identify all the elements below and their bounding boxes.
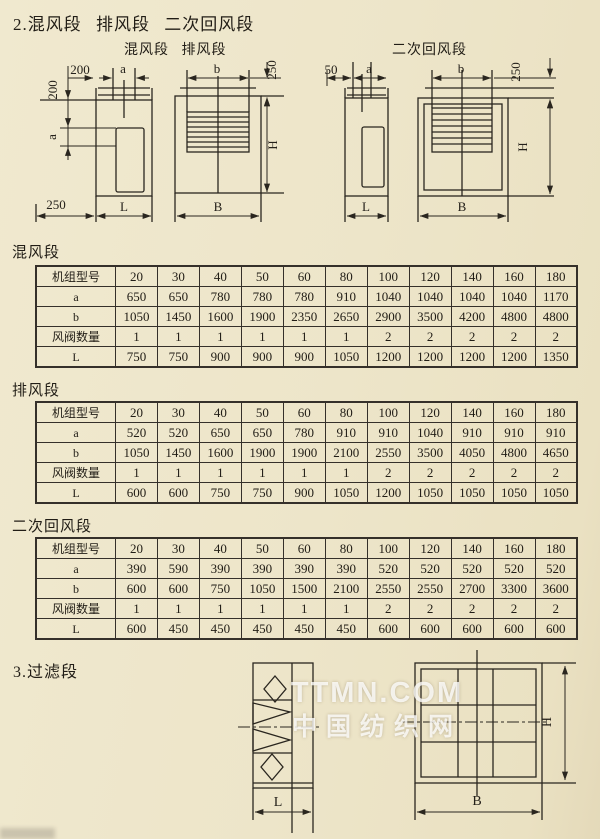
filter-wedge — [253, 703, 290, 724]
diamond-symbol — [264, 676, 286, 702]
model-column-header: 60 — [283, 402, 325, 423]
model-column-header: 50 — [241, 402, 283, 423]
table-cell: 2650 — [325, 307, 367, 327]
table-cell: 600 — [157, 579, 199, 599]
table-cell: 1350 — [535, 347, 577, 368]
table-cell: 750 — [241, 483, 283, 504]
model-column-header: 160 — [493, 538, 535, 559]
table-cell: 1 — [325, 327, 367, 347]
table-cell: 1200 — [367, 347, 409, 368]
table-cell: 2700 — [451, 579, 493, 599]
table-row: L600450450450450450600600600600600 — [36, 619, 577, 640]
table-cell: 600 — [116, 483, 158, 504]
table-cell: 2 — [451, 327, 493, 347]
table-cell: 3300 — [493, 579, 535, 599]
scan-artifact — [0, 828, 55, 839]
table-section-label-mixing: 混风段 — [12, 241, 60, 262]
table-cell: 590 — [157, 559, 199, 579]
table-cell: 520 — [409, 559, 451, 579]
table-cell: 750 — [157, 347, 199, 368]
table-section-label-secondary-return: 二次回风段 — [12, 515, 92, 536]
table-cell: 1 — [283, 599, 325, 619]
model-column-header: 180 — [535, 402, 577, 423]
table-header-row: 机组型号203040506080100120140160180 — [36, 538, 577, 559]
table-cell: 2 — [409, 599, 451, 619]
dim-label-50: 50 — [325, 62, 338, 77]
table-cell: 2550 — [367, 443, 409, 463]
mixing-section-table: 机组型号203040506080100120140160180a65065078… — [35, 265, 578, 368]
table-cell: 1050 — [116, 443, 158, 463]
table-cell: 1 — [283, 463, 325, 483]
table-cell: 780 — [199, 287, 241, 307]
table-cell: 600 — [535, 619, 577, 640]
table-cell: 1600 — [199, 307, 241, 327]
model-column-header: 100 — [367, 538, 409, 559]
diagram-caption-mixing-exhaust: 混风段 排风段 — [124, 39, 227, 59]
table-cell: 3500 — [409, 307, 451, 327]
model-column-header: 50 — [241, 538, 283, 559]
table-cell: 520 — [367, 559, 409, 579]
table-cell: 1 — [116, 599, 158, 619]
table-row: 风阀数量11111122222 — [36, 599, 577, 619]
row-label-header: 机组型号 — [36, 266, 116, 287]
table-cell: 1050 — [493, 483, 535, 504]
row-label: b — [36, 307, 116, 327]
table-cell: 1200 — [367, 483, 409, 504]
row-label: L — [36, 619, 116, 640]
model-column-header: 80 — [325, 538, 367, 559]
dim-label-250: 250 — [508, 62, 523, 82]
diagram-caption-secondary-return: 二次回风段 — [392, 39, 467, 59]
filter-section-diagram: L B H — [238, 650, 576, 833]
table-cell: 2 — [493, 463, 535, 483]
secondary-return-table: 机组型号203040506080100120140160180a39059039… — [35, 537, 578, 640]
table-cell: 1 — [199, 327, 241, 347]
table-cell: 450 — [241, 619, 283, 640]
table-cell: 1 — [116, 327, 158, 347]
row-label: a — [36, 423, 116, 443]
scanned-document-page: 2.混风段 排风段 二次回风段 混风段 排风段 二次回风段 — [0, 0, 600, 839]
table-cell: 450 — [157, 619, 199, 640]
model-column-header: 120 — [409, 538, 451, 559]
table-cell: 4800 — [493, 443, 535, 463]
table-cell: 2900 — [367, 307, 409, 327]
table-cell: 4650 — [535, 443, 577, 463]
dim-label-H: H — [540, 717, 555, 727]
table-row: b600600750105015002100255025502700330036… — [36, 579, 577, 599]
dim-label-b: b — [214, 61, 221, 76]
table-cell: 390 — [325, 559, 367, 579]
model-column-header: 180 — [535, 266, 577, 287]
table-cell: 900 — [199, 347, 241, 368]
row-label: b — [36, 443, 116, 463]
table-cell: 2 — [367, 599, 409, 619]
dim-label-a-left: a — [44, 134, 59, 140]
damper-blade — [116, 128, 144, 192]
table-cell: 4200 — [451, 307, 493, 327]
table-cell: 1040 — [451, 287, 493, 307]
table-cell: 1200 — [409, 347, 451, 368]
table-cell: 910 — [493, 423, 535, 443]
table-cell: 600 — [367, 619, 409, 640]
table-cell: 1900 — [241, 443, 283, 463]
diamond-symbol — [261, 754, 283, 780]
table-cell: 1600 — [199, 443, 241, 463]
table-cell: 1900 — [241, 307, 283, 327]
dim-label-a: a — [366, 61, 372, 76]
table-cell: 1 — [116, 463, 158, 483]
table-cell: 3600 — [535, 579, 577, 599]
table-cell: 2350 — [283, 307, 325, 327]
dim-label-a-top: a — [120, 61, 126, 76]
table-cell: 2 — [451, 463, 493, 483]
table-row: L750750900900900105012001200120012001350 — [36, 347, 577, 368]
table-cell: 600 — [116, 579, 158, 599]
table-cell: 780 — [241, 287, 283, 307]
table-cell: 2550 — [409, 579, 451, 599]
table-cell: 1 — [325, 463, 367, 483]
table-section-label-exhaust: 排风段 — [12, 379, 60, 400]
table-cell: 390 — [283, 559, 325, 579]
model-column-header: 120 — [409, 402, 451, 423]
model-column-header: 160 — [493, 266, 535, 287]
model-column-header: 120 — [409, 266, 451, 287]
table-cell: 1200 — [451, 347, 493, 368]
table-header-row: 机组型号203040506080100120140160180 — [36, 402, 577, 423]
table-cell: 1170 — [535, 287, 577, 307]
row-label: b — [36, 579, 116, 599]
table-cell: 520 — [535, 559, 577, 579]
table-cell: 1050 — [451, 483, 493, 504]
filter-section-heading: 3.过滤段 — [13, 658, 78, 682]
front-view-body — [418, 70, 554, 222]
table-cell: 750 — [199, 483, 241, 504]
model-column-header: 100 — [367, 266, 409, 287]
table-cell: 1 — [241, 327, 283, 347]
table-cell: 1 — [241, 463, 283, 483]
table-row: a5205206506507809109101040910910910 — [36, 423, 577, 443]
model-column-header: 30 — [157, 266, 199, 287]
mixing-exhaust-diagram: 200 a 200 a 250 L b 250 H B — [36, 60, 284, 222]
secondary-return-diagram: 50 a L b 250 H B — [325, 58, 557, 222]
table-cell: 650 — [241, 423, 283, 443]
row-label: L — [36, 347, 116, 368]
table-cell: 4050 — [451, 443, 493, 463]
table-cell: 390 — [199, 559, 241, 579]
dimension-lines — [255, 666, 565, 812]
table-cell: 910 — [451, 423, 493, 443]
row-label: 风阀数量 — [36, 599, 116, 619]
dim-label-L: L — [274, 795, 283, 810]
table-cell: 2100 — [325, 443, 367, 463]
model-column-header: 30 — [157, 402, 199, 423]
table-header-row: 机组型号203040506080100120140160180 — [36, 266, 577, 287]
table-cell: 520 — [116, 423, 158, 443]
model-column-header: 80 — [325, 266, 367, 287]
table-cell: 1040 — [367, 287, 409, 307]
table-cell: 2550 — [367, 579, 409, 599]
dim-label-B: B — [458, 199, 467, 214]
table-cell: 1050 — [325, 347, 367, 368]
table-cell: 390 — [241, 559, 283, 579]
table-cell: 2 — [493, 599, 535, 619]
table-cell: 1500 — [283, 579, 325, 599]
model-column-header: 100 — [367, 402, 409, 423]
table-cell: 650 — [199, 423, 241, 443]
table-cell: 3500 — [409, 443, 451, 463]
table-cell: 2 — [535, 327, 577, 347]
dim-label-b: b — [458, 61, 465, 76]
table-cell: 2 — [409, 327, 451, 347]
table-cell: 1 — [241, 599, 283, 619]
model-column-header: 140 — [451, 538, 493, 559]
model-column-header: 140 — [451, 402, 493, 423]
table-cell: 1900 — [283, 443, 325, 463]
table-cell: 600 — [493, 619, 535, 640]
table-cell: 1200 — [493, 347, 535, 368]
table-cell: 2 — [409, 463, 451, 483]
table-cell: 910 — [367, 423, 409, 443]
page-title: 2.混风段 排风段 二次回风段 — [13, 10, 254, 35]
damper-blade — [362, 127, 384, 187]
row-label: 风阀数量 — [36, 327, 116, 347]
table-cell: 2 — [535, 463, 577, 483]
table-cell: 1040 — [409, 287, 451, 307]
dim-label-L: L — [362, 199, 370, 214]
model-column-header: 60 — [283, 538, 325, 559]
dim-label-B: B — [472, 794, 481, 809]
model-column-header: 140 — [451, 266, 493, 287]
model-column-header: 30 — [157, 538, 199, 559]
table-cell: 2 — [535, 599, 577, 619]
table-cell: 1 — [199, 599, 241, 619]
table-cell: 600 — [116, 619, 158, 640]
table-cell: 1 — [157, 599, 199, 619]
table-cell: 1040 — [493, 287, 535, 307]
table-row: 风阀数量11111122222 — [36, 463, 577, 483]
dim-label-H: H — [515, 142, 530, 151]
model-column-header: 40 — [199, 266, 241, 287]
row-label: a — [36, 287, 116, 307]
filter-front-view — [402, 650, 576, 820]
filter-wedge — [253, 729, 290, 751]
side-view-body — [345, 62, 388, 222]
row-label-header: 机组型号 — [36, 538, 116, 559]
exhaust-section-table: 机组型号203040506080100120140160180a52052065… — [35, 401, 578, 504]
table-cell: 520 — [493, 559, 535, 579]
model-column-header: 20 — [116, 266, 158, 287]
table-cell: 1450 — [157, 307, 199, 327]
table-cell: 390 — [116, 559, 158, 579]
table-cell: 1050 — [116, 307, 158, 327]
table-cell: 4800 — [493, 307, 535, 327]
table-cell: 910 — [325, 423, 367, 443]
dim-label-H: H — [265, 140, 280, 149]
table-cell: 520 — [451, 559, 493, 579]
table-cell: 650 — [157, 287, 199, 307]
row-label: L — [36, 483, 116, 504]
table-cell: 1050 — [409, 483, 451, 504]
table-cell: 900 — [241, 347, 283, 368]
table-cell: 650 — [116, 287, 158, 307]
model-column-header: 80 — [325, 402, 367, 423]
table-cell: 1050 — [241, 579, 283, 599]
table-cell: 450 — [199, 619, 241, 640]
dim-label-200-top: 200 — [70, 62, 90, 77]
table-cell: 2 — [451, 599, 493, 619]
table-cell: 900 — [283, 483, 325, 504]
table-row: a390590390390390390520520520520520 — [36, 559, 577, 579]
table-cell: 780 — [283, 423, 325, 443]
row-label: 风阀数量 — [36, 463, 116, 483]
dim-label-200-left: 200 — [45, 80, 60, 100]
table-cell: 780 — [283, 287, 325, 307]
dim-label-L: L — [120, 199, 128, 214]
row-label-header: 机组型号 — [36, 402, 116, 423]
table-cell: 900 — [283, 347, 325, 368]
table-cell: 1 — [283, 327, 325, 347]
table-row: b105014501600190023502650290035004200480… — [36, 307, 577, 327]
table-cell: 600 — [157, 483, 199, 504]
table-cell: 1 — [325, 599, 367, 619]
table-cell: 1050 — [535, 483, 577, 504]
table-cell: 910 — [325, 287, 367, 307]
table-cell: 910 — [535, 423, 577, 443]
table-row: a65065078078078091010401040104010401170 — [36, 287, 577, 307]
table-cell: 450 — [325, 619, 367, 640]
table-row: b105014501600190019002100255035004050480… — [36, 443, 577, 463]
table-cell: 1 — [157, 327, 199, 347]
model-column-header: 20 — [116, 538, 158, 559]
model-column-header: 40 — [199, 402, 241, 423]
model-column-header: 40 — [199, 538, 241, 559]
table-row: 风阀数量11111122222 — [36, 327, 577, 347]
dim-label-B: B — [214, 199, 223, 214]
table-cell: 2 — [367, 463, 409, 483]
table-row: L600600750750900105012001050105010501050 — [36, 483, 577, 504]
table-cell: 1 — [199, 463, 241, 483]
table-cell: 1050 — [325, 483, 367, 504]
table-cell: 750 — [116, 347, 158, 368]
table-cell: 750 — [199, 579, 241, 599]
table-cell: 450 — [283, 619, 325, 640]
model-column-header: 180 — [535, 538, 577, 559]
table-cell: 2 — [493, 327, 535, 347]
row-label: a — [36, 559, 116, 579]
model-column-header: 60 — [283, 266, 325, 287]
model-column-header: 160 — [493, 402, 535, 423]
table-cell: 520 — [157, 423, 199, 443]
table-cell: 2100 — [325, 579, 367, 599]
table-cell: 600 — [409, 619, 451, 640]
table-cell: 4800 — [535, 307, 577, 327]
model-column-header: 50 — [241, 266, 283, 287]
table-cell: 2 — [367, 327, 409, 347]
model-column-header: 20 — [116, 402, 158, 423]
table-cell: 1040 — [409, 423, 451, 443]
table-cell: 1450 — [157, 443, 199, 463]
dim-label-250-right: 250 — [264, 60, 279, 80]
table-cell: 1 — [157, 463, 199, 483]
table-cell: 600 — [451, 619, 493, 640]
dim-label-250-bottom: 250 — [46, 197, 66, 212]
